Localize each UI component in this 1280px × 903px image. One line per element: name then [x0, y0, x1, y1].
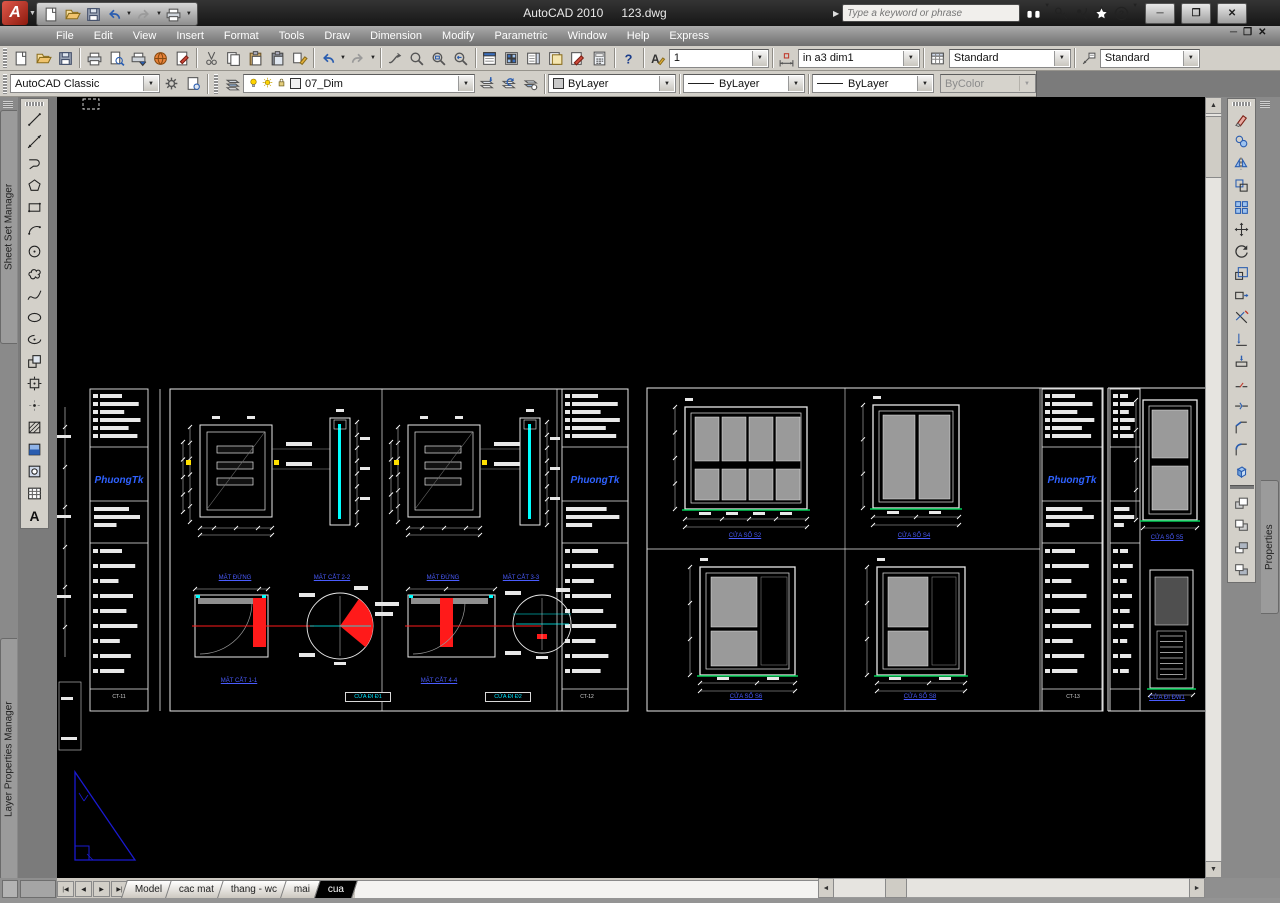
tool-palettes-icon[interactable]: [523, 47, 545, 69]
search-icon[interactable]: [1023, 3, 1043, 23]
infocenter-buttons: ▼?▼: [1023, 3, 1139, 23]
text-style-combo[interactable]: 1▼: [669, 49, 769, 68]
canvas-label: CỬA ĐI Đ1: [345, 692, 391, 702]
dropdown-arrow-icon[interactable]: ▼: [156, 11, 162, 17]
redo-icon[interactable]: [347, 47, 369, 69]
title-bar: A ▼ ▼▼▼ AutoCAD 2010 123.dwg ▶ ▼?▼ ─ ❐ ✕: [0, 0, 1280, 26]
pan-realtime-icon[interactable]: [384, 47, 406, 69]
cut-icon[interactable]: [200, 47, 222, 69]
ellipse-icon[interactable]: [23, 306, 47, 328]
save-icon[interactable]: [83, 4, 103, 24]
layer-properties-icon[interactable]: [221, 73, 243, 95]
subscription-key-icon[interactable]: [1051, 3, 1071, 23]
menu-dimension[interactable]: Dimension: [360, 26, 432, 46]
designcenter-icon[interactable]: [501, 47, 523, 69]
search-input[interactable]: [842, 4, 1020, 22]
communication-center-icon[interactable]: [1071, 3, 1091, 23]
properties-palette-icon[interactable]: [479, 47, 501, 69]
properties-palette-tab[interactable]: Properties: [1261, 480, 1279, 614]
paste-icon[interactable]: [244, 47, 266, 69]
vertical-scroll-thumb[interactable]: [1205, 116, 1222, 178]
point-icon[interactable]: [23, 394, 47, 416]
toolbar-grip[interactable]: [3, 74, 7, 94]
multileader-style-icon[interactable]: [1078, 47, 1100, 69]
menu-draw[interactable]: Draw: [314, 26, 360, 46]
combo-arrow-icon[interactable]: ▼: [143, 76, 158, 91]
construction-line-icon[interactable]: [23, 130, 47, 152]
save-workspace-icon[interactable]: [182, 73, 204, 95]
offset-icon[interactable]: [1230, 174, 1254, 196]
3d-dwf-icon[interactable]: [149, 47, 171, 69]
rectangle-icon[interactable]: [23, 196, 47, 218]
lineweight-combo[interactable]: ByLayer▼: [812, 74, 934, 93]
zoom-previous-icon[interactable]: [450, 47, 472, 69]
new-icon[interactable]: [41, 4, 61, 24]
dimension-style-combo[interactable]: in a3 dim1▼: [798, 49, 920, 68]
svg-text:?: ?: [1119, 8, 1124, 18]
tab-first-button[interactable]: |◀: [57, 881, 74, 897]
restore-button[interactable]: ❐: [1181, 3, 1211, 24]
layer-previous-icon[interactable]: [497, 73, 519, 95]
chamfer-icon[interactable]: [1230, 416, 1254, 438]
dropdown-arrow-icon[interactable]: ▼: [186, 11, 192, 17]
redo-icon[interactable]: [134, 4, 154, 24]
make-block-icon[interactable]: [23, 372, 47, 394]
scroll-down-button[interactable]: ▼: [1205, 861, 1222, 878]
horizontal-scrollbar[interactable]: ◄ ►: [818, 878, 1205, 898]
svg-text:?: ?: [625, 51, 633, 66]
canvas-label: PhuongTk: [562, 475, 628, 486]
logo-menu-arrow-icon[interactable]: ▼: [29, 10, 36, 17]
spline-icon[interactable]: [23, 284, 47, 306]
canvas-label: MẶT ĐỨNG: [203, 575, 267, 582]
layer-lock-icon[interactable]: [276, 77, 287, 91]
plot-icon[interactable]: [83, 47, 105, 69]
arc-icon[interactable]: [23, 218, 47, 240]
menu-bar: FileEditViewInsertFormatToolsDrawDimensi…: [0, 26, 1280, 46]
quickcalc-icon[interactable]: [589, 47, 611, 69]
canvas-label: CT-12: [569, 694, 605, 700]
fillet-icon[interactable]: [1230, 438, 1254, 460]
circle-icon[interactable]: [23, 240, 47, 262]
infocenter: ▶ ▼?▼ ─ ❐ ✕: [833, 3, 1247, 23]
favorites-icon[interactable]: [1091, 3, 1111, 23]
canvas-label: CỬA SỔ S4: [881, 533, 947, 540]
array-icon[interactable]: [1230, 196, 1254, 218]
combo-arrow-icon[interactable]: ▼: [659, 76, 674, 91]
markup-set-manager-icon[interactable]: [567, 47, 589, 69]
explode-icon[interactable]: [1230, 460, 1254, 482]
help-icon[interactable]: ?: [618, 47, 640, 69]
layer-on-icon[interactable]: [248, 77, 259, 91]
properties-palette-label: Properties: [1264, 524, 1275, 570]
doc-restore-button[interactable]: ❐: [1243, 27, 1252, 38]
polygon-icon[interactable]: [23, 174, 47, 196]
palette-grip[interactable]: [1260, 101, 1270, 108]
scroll-up-button[interactable]: ▲: [1205, 97, 1222, 114]
toolbar-grip[interactable]: [214, 74, 218, 94]
undo-icon[interactable]: [317, 47, 339, 69]
corner-widget: [2, 880, 18, 898]
multiline-text-icon[interactable]: A: [23, 504, 47, 526]
linetype-preview: [688, 83, 714, 84]
move-icon[interactable]: [1230, 218, 1254, 240]
stretch-icon[interactable]: [1230, 284, 1254, 306]
canvas-label: CỬA ĐI Đ2: [485, 692, 531, 702]
combo-arrow-icon[interactable]: ▼: [788, 76, 803, 91]
close-button[interactable]: ✕: [1217, 3, 1247, 24]
status-bar: [0, 898, 1280, 903]
canvas-label: CỬA SỔ S8: [887, 694, 953, 701]
menu-edit[interactable]: Edit: [84, 26, 123, 46]
undo-icon[interactable]: [104, 4, 124, 24]
sheet-set-manager-label: Sheet Set Manager: [4, 184, 15, 270]
canvas-label: MẶT CẮT 3-3: [489, 575, 553, 582]
linetype-combo[interactable]: ByLayer▼: [683, 74, 805, 93]
toolbar-grip[interactable]: [1232, 102, 1251, 106]
send-to-back-icon[interactable]: [1230, 514, 1254, 536]
horizontal-scroll-thumb[interactable]: [885, 878, 907, 898]
standard-toolbar: ▼▼? A 1▼ in a3 dim1▼ Standard▼ Standard▼: [0, 46, 1280, 71]
plot-icon[interactable]: [164, 4, 184, 24]
open-icon[interactable]: [32, 47, 54, 69]
doc-close-button[interactable]: ✕: [1258, 27, 1266, 38]
layer-states-icon[interactable]: [519, 73, 541, 95]
publish-icon[interactable]: [127, 47, 149, 69]
autocad-logo-icon[interactable]: A: [2, 1, 28, 25]
hatch-icon[interactable]: [23, 416, 47, 438]
insert-block-icon[interactable]: [23, 350, 47, 372]
menu-tools[interactable]: Tools: [269, 26, 315, 46]
layer-color-swatch: [290, 78, 301, 89]
canvas-label: CỬA ĐI ĐW1: [1137, 695, 1197, 702]
document-window-controls: ─ ❐ ✕: [1230, 27, 1266, 38]
minimize-button[interactable]: ─: [1145, 3, 1175, 24]
menu-help[interactable]: Help: [617, 26, 660, 46]
menu-parametric[interactable]: Parametric: [484, 26, 557, 46]
table-style-combo[interactable]: Standard▼: [949, 49, 1071, 68]
ellipse-arc-icon[interactable]: [23, 328, 47, 350]
dropdown-arrow-icon[interactable]: ▼: [126, 11, 132, 17]
layer-freeze-icon[interactable]: [262, 77, 273, 91]
dropdown-arrow-icon[interactable]: ▼: [1132, 3, 1138, 23]
menu-insert[interactable]: Insert: [166, 26, 214, 46]
help-round-icon[interactable]: ?: [1111, 3, 1131, 23]
document-title: 123.dwg: [621, 6, 666, 20]
color-swatch: [553, 78, 564, 89]
workspace-combo[interactable]: AutoCAD Classic▼: [10, 74, 160, 93]
break-icon[interactable]: [1230, 372, 1254, 394]
rotate-icon[interactable]: [1230, 240, 1254, 262]
menu-view[interactable]: View: [123, 26, 167, 46]
canvas-label: MẶT CẮT 2-2: [300, 575, 364, 582]
autocad-window: { "titlebar": { "app_title": "AutoCAD 20…: [0, 0, 1280, 903]
dropdown-arrow-icon[interactable]: ▼: [1044, 3, 1050, 23]
combo-arrow-icon[interactable]: ▼: [903, 51, 918, 66]
plot-preview-icon[interactable]: [105, 47, 127, 69]
color-combo[interactable]: ByLayer▼: [548, 74, 676, 93]
combo-arrow-icon[interactable]: ▼: [917, 76, 932, 91]
region-icon[interactable]: [23, 460, 47, 482]
dimension-style-icon[interactable]: [776, 47, 798, 69]
window-title: AutoCAD 2010 123.dwg: [380, 0, 810, 26]
canvas-label: CT-11: [101, 694, 137, 700]
text-style-icon[interactable]: A: [647, 47, 669, 69]
corner-widget: [20, 880, 56, 898]
combo-arrow-icon: ▼: [1019, 76, 1034, 91]
menu-file[interactable]: File: [46, 26, 84, 46]
scroll-left-button[interactable]: ◄: [818, 878, 834, 898]
canvas-label: PhuongTk: [91, 475, 147, 486]
app-title: AutoCAD 2010: [523, 6, 603, 20]
toolbar-grip[interactable]: [25, 102, 44, 106]
copy-object-icon[interactable]: [1230, 130, 1254, 152]
layout-tab-bar: |◀◀▶▶|Modelcac matthang - wcmaicua: [57, 878, 818, 898]
menu-express[interactable]: Express: [659, 26, 719, 46]
canvas-label: MẶT CẮT 4-4: [407, 678, 471, 685]
canvas-label: CỬA SỔ S6: [713, 694, 779, 701]
menu-window[interactable]: Window: [558, 26, 617, 46]
tab-next-button[interactable]: ▶: [93, 881, 110, 897]
open-icon[interactable]: [62, 4, 82, 24]
canvas-label: CỬA SỔ S2: [712, 533, 778, 540]
modify-toolbar: [1227, 98, 1256, 583]
save-icon[interactable]: [54, 47, 76, 69]
doc-minimize-button[interactable]: ─: [1230, 27, 1237, 38]
layer-combo[interactable]: 07_Dim▼: [243, 74, 475, 93]
canvas-label: CT-13: [1055, 694, 1091, 700]
workspace-settings-icon[interactable]: [160, 73, 182, 95]
infocenter-collapse-icon[interactable]: ▶: [833, 9, 839, 18]
drawing-canvas[interactable]: PhuongTkPhuongTkPhuongTkMẶT ĐỨNGMẶT CẮT …: [57, 97, 1205, 878]
toolbar-grip[interactable]: [3, 48, 7, 68]
vertical-scrollbar[interactable]: ▲ ▼: [1205, 97, 1222, 878]
lineweight-preview: [817, 83, 843, 84]
combo-arrow-icon[interactable]: ▼: [752, 51, 767, 66]
canvas-label: CỬA SỔ S5: [1137, 535, 1197, 542]
scale-icon[interactable]: [1230, 262, 1254, 284]
svg-text:A: A: [30, 507, 40, 523]
layer-properties-manager-tab[interactable]: Layer Properties Manager: [0, 638, 17, 880]
layout-tab-cua[interactable]: cua: [314, 880, 358, 898]
combo-arrow-icon[interactable]: ▼: [1054, 51, 1069, 66]
tab-prev-button[interactable]: ◀: [75, 881, 92, 897]
match-properties-icon[interactable]: [288, 47, 310, 69]
break-at-point-icon[interactable]: [1230, 350, 1254, 372]
multileader-style-combo[interactable]: Standard▼: [1100, 49, 1200, 68]
palette-grip[interactable]: [3, 101, 13, 108]
table-icon[interactable]: [23, 482, 47, 504]
copy-icon[interactable]: [222, 47, 244, 69]
zoom-realtime-icon[interactable]: [406, 47, 428, 69]
paste-special-icon[interactable]: [266, 47, 288, 69]
mirror-icon[interactable]: [1230, 152, 1254, 174]
layer-properties-manager-label: Layer Properties Manager: [4, 701, 15, 817]
bring-above-objects-icon[interactable]: [1230, 536, 1254, 558]
canvas-label: PhuongTk: [1042, 475, 1102, 486]
join-icon[interactable]: [1230, 394, 1254, 416]
dropdown-arrow-icon[interactable]: ▼: [340, 55, 346, 61]
erase-icon[interactable]: [1230, 108, 1254, 130]
revision-cloud-icon[interactable]: [23, 262, 47, 284]
new-icon[interactable]: [10, 47, 32, 69]
zoom-window-icon[interactable]: [428, 47, 450, 69]
polyline-icon[interactable]: [23, 152, 47, 174]
workspace-layers-properties-toolbar: AutoCAD Classic▼ 07_Dim▼ ByLayer▼ ByLaye…: [0, 71, 1280, 97]
table-style-icon[interactable]: [927, 47, 949, 69]
send-under-objects-icon[interactable]: [1230, 558, 1254, 580]
canvas-label: MẶT CẮT 1-1: [207, 678, 271, 685]
sheet-set-manager-icon[interactable]: [545, 47, 567, 69]
draw-toolbar: A: [20, 98, 49, 529]
make-object-layer-current-icon[interactable]: [475, 73, 497, 95]
bring-to-front-icon[interactable]: [1230, 492, 1254, 514]
sheet-set-manager-tab[interactable]: Sheet Set Manager: [0, 110, 17, 344]
line-icon[interactable]: [23, 108, 47, 130]
trim-icon[interactable]: [1230, 306, 1254, 328]
combo-arrow-icon[interactable]: ▼: [458, 76, 473, 91]
quick-access-toolbar: ▼▼▼: [36, 2, 198, 26]
plot-style-combo: ByColor▼: [940, 74, 1036, 93]
canvas-label: MẶT ĐỨNG: [411, 575, 475, 582]
extend-icon[interactable]: [1230, 328, 1254, 350]
menu-modify[interactable]: Modify: [432, 26, 484, 46]
scroll-right-button[interactable]: ►: [1189, 878, 1205, 898]
markup-icon[interactable]: [171, 47, 193, 69]
gradient-icon[interactable]: [23, 438, 47, 460]
combo-arrow-icon[interactable]: ▼: [1183, 51, 1198, 66]
menu-format[interactable]: Format: [214, 26, 269, 46]
dropdown-arrow-icon[interactable]: ▼: [370, 55, 376, 61]
